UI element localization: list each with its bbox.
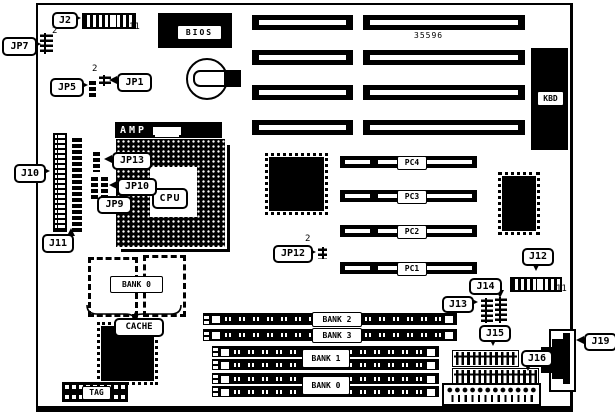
- pointer-jp13: [104, 155, 112, 163]
- j19-body-mid: [552, 339, 564, 379]
- callout-jp9: JP9: [97, 196, 132, 214]
- connector-j2: [82, 13, 136, 29]
- connector-j13: [480, 297, 494, 324]
- pc2-label: PC2: [397, 225, 427, 239]
- isa-slot: [363, 50, 525, 65]
- simm-end-cap: [213, 360, 218, 369]
- isa-slot: [252, 120, 353, 135]
- isa-slot: [252, 85, 353, 100]
- simm-clip-right: [444, 315, 454, 324]
- callout-jp7: JP7: [2, 37, 37, 56]
- bank1-label: BANK 1: [302, 349, 350, 368]
- simm-clip-left: [220, 361, 230, 370]
- pc1-label: PC1: [397, 262, 427, 276]
- io-qfp: [498, 172, 540, 235]
- simm-clip-right: [426, 361, 436, 370]
- battery-clip: [193, 70, 241, 87]
- callout-j14: J14: [469, 278, 502, 295]
- power-pins-square: [446, 394, 537, 403]
- simm-clip-left: [211, 315, 221, 324]
- kbd-label: KBD: [537, 91, 564, 106]
- bios-label: BIOS: [177, 25, 222, 40]
- amp-label: AMP: [120, 125, 147, 136]
- connector-jp5: [88, 79, 97, 99]
- connector-j14: [494, 296, 508, 324]
- callout-jp5: JP5: [50, 78, 84, 97]
- simm-clip-left: [220, 388, 230, 397]
- callout-j13: J13: [442, 296, 474, 313]
- tag-label: TAG: [82, 386, 111, 400]
- connector-jp12: [317, 246, 328, 260]
- simm-clip-left: [211, 331, 221, 340]
- pin-count-jp1: 2: [92, 65, 97, 74]
- board-edge-bottom: [36, 406, 573, 412]
- simm-end-cap: [213, 347, 218, 356]
- part-number: 35596: [414, 32, 443, 40]
- pc4-label: PC4: [397, 156, 427, 170]
- simm-clip-right: [444, 331, 454, 340]
- bank2-label: BANK 2: [312, 312, 362, 327]
- socket-shadow-bottom: [121, 249, 230, 252]
- motherboard-diagram: J2 11 JP7 2 JP5 2 JP1 BIOS 35596 KBD J10…: [0, 0, 615, 416]
- pin-count-j2: 11: [129, 23, 140, 32]
- bank0-label: BANK 0: [302, 376, 350, 395]
- isa-slot: [363, 120, 525, 135]
- cpu-label: CPU: [152, 188, 188, 209]
- simm-clip-left: [220, 375, 230, 384]
- pointer-j19: [576, 336, 584, 344]
- connector-jp13: [92, 150, 101, 174]
- isa-slot: [363, 85, 525, 100]
- pin-count-j12: 11: [556, 285, 567, 294]
- connector-j11: [71, 134, 83, 234]
- board-edge-top: [36, 3, 573, 5]
- j19-body-bar: [563, 333, 570, 384]
- isa-slot: [252, 50, 353, 65]
- board-edge-left: [36, 3, 38, 408]
- connector-j10: [53, 133, 67, 232]
- socket-shadow-right: [227, 145, 230, 251]
- callout-jp12: JP12: [273, 245, 313, 263]
- callout-j11: J11: [42, 234, 74, 253]
- pin-count-jp7: 2: [52, 27, 57, 36]
- callout-j15: J15: [479, 325, 511, 342]
- amp-header: AMP: [115, 122, 222, 138]
- pointer-jp10: [109, 181, 117, 189]
- simm-end-cap: [204, 330, 209, 340]
- bank3-label: BANK 3: [312, 328, 362, 343]
- cache-label: CACHE: [114, 318, 164, 337]
- battery-clip-tip: [224, 72, 239, 85]
- callout-jp13: JP13: [112, 152, 152, 170]
- power-connector: [442, 383, 541, 406]
- pointer-jp1: [109, 76, 117, 84]
- simm-clip-right: [426, 388, 436, 397]
- callout-j19: J19: [584, 333, 615, 351]
- pin-count-jp12: 2: [305, 235, 310, 244]
- isa-slot: [252, 15, 353, 30]
- pc3-label: PC3: [397, 190, 427, 204]
- simm-end-cap: [213, 387, 218, 396]
- simm-clip-right: [426, 348, 436, 357]
- callout-j16: J16: [521, 350, 553, 367]
- simm-clip-left: [220, 348, 230, 357]
- callout-j12: J12: [522, 248, 554, 266]
- simm-clip-right: [426, 375, 436, 384]
- callout-jp10: JP10: [117, 178, 157, 196]
- power-pins-round: [446, 386, 537, 394]
- callout-j10: J10: [14, 164, 46, 183]
- cache-bank0-label: BANK 0: [110, 276, 163, 293]
- callout-jp1: JP1: [117, 73, 152, 92]
- simm-end-cap: [204, 314, 209, 324]
- simm-end-cap: [213, 374, 218, 383]
- chipset-qfp: [265, 153, 328, 215]
- isa-slot: [363, 15, 525, 30]
- connector-j15: [452, 350, 519, 367]
- connector-j12: [510, 277, 562, 292]
- amp-slot-window: [153, 126, 181, 135]
